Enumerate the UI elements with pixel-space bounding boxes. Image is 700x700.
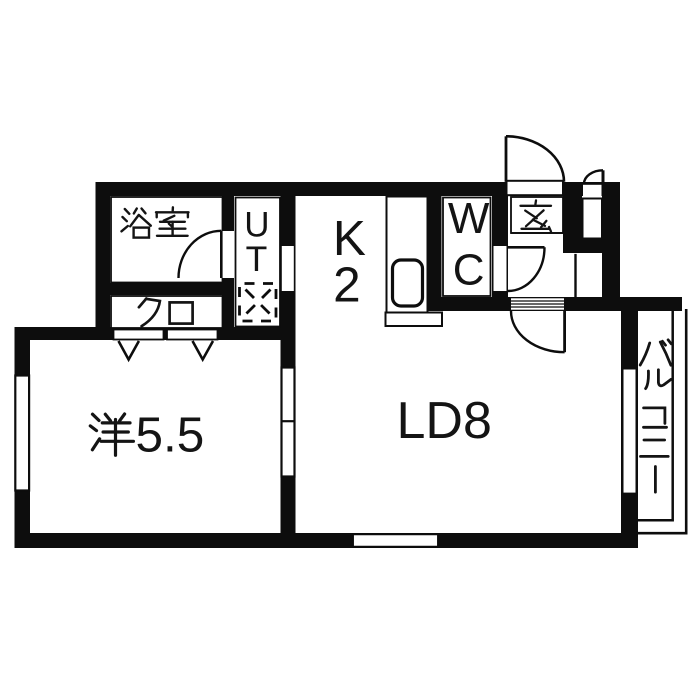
svg-text:T: T <box>246 239 268 279</box>
svg-text:2: 2 <box>333 257 361 312</box>
svg-text:5.5: 5.5 <box>136 408 205 463</box>
svg-text:LD8: LD8 <box>397 392 492 450</box>
svg-text:C: C <box>453 245 485 294</box>
svg-text:W: W <box>448 194 490 243</box>
